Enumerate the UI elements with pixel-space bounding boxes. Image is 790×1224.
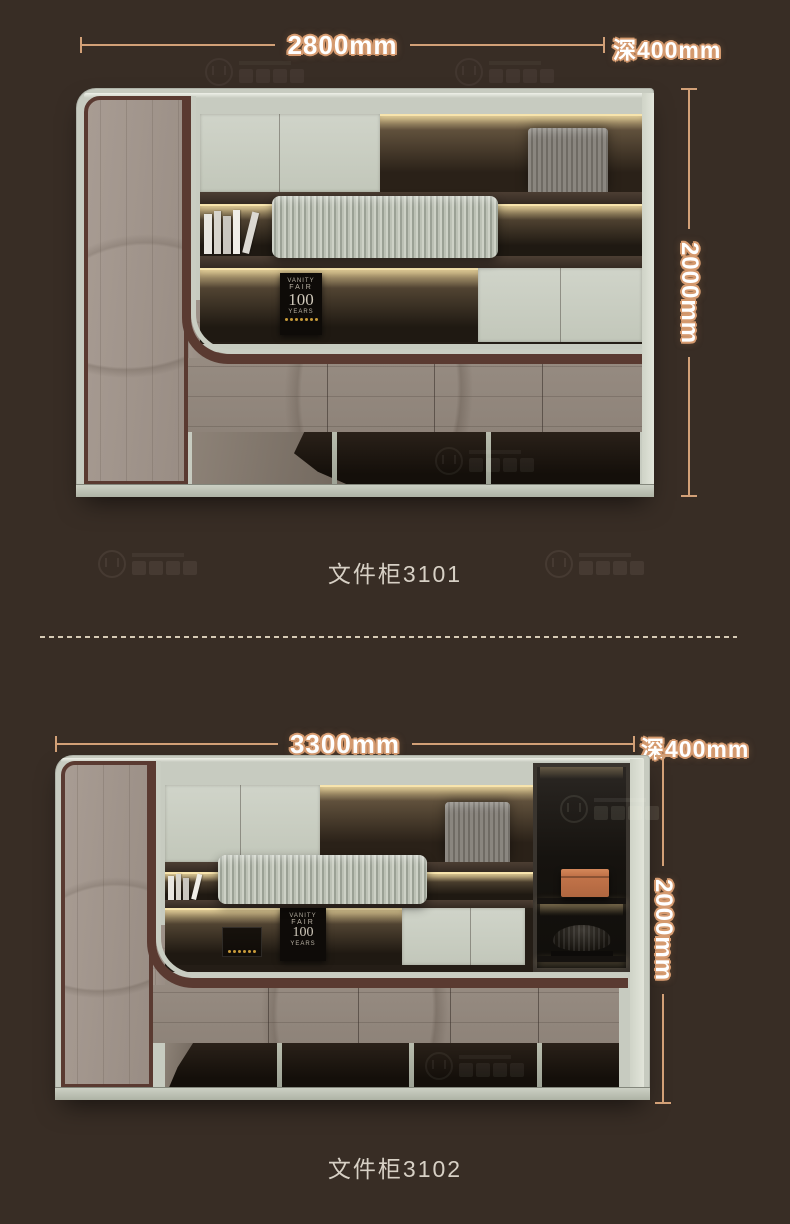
- cabinet-side-panel: [642, 93, 654, 485]
- books-decor: [204, 210, 266, 254]
- dashed-divider: [40, 636, 737, 638]
- upper-cabinet-doors: [200, 114, 380, 192]
- dimension-line: [410, 44, 603, 46]
- led-strip-light: [540, 767, 623, 779]
- brand-watermark-icon: [455, 58, 554, 86]
- book-spine: [168, 876, 174, 900]
- height-dimension-line-3102: 2000mm: [655, 755, 671, 1104]
- orange-box-decor: [561, 869, 609, 897]
- open-shelf-top: [380, 114, 642, 192]
- book-spine: [176, 874, 181, 900]
- dimension-tick: [655, 1102, 671, 1104]
- ribbed-decor-box: [528, 128, 608, 192]
- magazine-dots: [280, 318, 322, 321]
- cabinet-illustration-3102: VANITY FAIR 100 YEARS: [55, 755, 650, 1100]
- product-caption-3101: 文件柜3101: [0, 555, 790, 589]
- books-decor: [168, 873, 216, 900]
- watermark-logo-icon: [455, 58, 483, 86]
- magazine-title-line: 100: [280, 926, 326, 941]
- open-recess: [165, 1043, 619, 1087]
- book-stack-decor: [551, 951, 613, 956]
- brand-watermark-icon: [205, 58, 304, 86]
- cabinet-side-panel: [630, 759, 644, 1088]
- height-dimension-label: 2000mm: [675, 241, 703, 343]
- door-seam: [560, 268, 561, 342]
- product-caption-3102: 文件柜3102: [0, 1150, 790, 1184]
- lower-sage-doors: [478, 268, 642, 342]
- led-strip-light: [320, 785, 533, 801]
- dark-bowl-decor: [553, 925, 611, 951]
- tall-wood-door: [61, 761, 153, 1088]
- recess-divider: [409, 1043, 414, 1087]
- door-seam: [470, 908, 471, 965]
- recess-divider: [332, 432, 337, 485]
- recess-divider: [537, 1043, 542, 1087]
- led-strip-light: [540, 904, 623, 916]
- wood-sweep-wedge: [165, 1043, 193, 1087]
- book-spine: [191, 874, 202, 900]
- fluted-sliding-door: [272, 196, 498, 258]
- door-seam: [240, 785, 241, 862]
- dimension-line: [412, 743, 633, 745]
- fluted-sliding-door: [218, 855, 427, 904]
- magazine-title-line: 100: [280, 291, 322, 309]
- depth-dimension-label: 深400mm: [613, 31, 721, 65]
- tall-wood-door: [84, 96, 188, 485]
- door-seam: [268, 978, 269, 1043]
- open-shelf-top: [320, 785, 533, 862]
- book-spine: [183, 878, 189, 900]
- cabinet-base: [76, 484, 654, 497]
- decor-dots: [228, 950, 256, 953]
- ribbed-decor-box: [445, 802, 510, 862]
- door-seam: [450, 978, 451, 1043]
- height-dimension-line-3101: 2000mm: [681, 88, 697, 497]
- magazine-cover: VANITY FAIR 100 YEARS: [280, 908, 326, 961]
- book-spine: [214, 211, 221, 254]
- door-seam: [327, 352, 328, 432]
- door-seam: [358, 978, 359, 1043]
- product-spec-image: 2800mm 深400mm: [0, 0, 790, 1224]
- dimension-line: [57, 743, 278, 745]
- book-spine: [233, 210, 240, 254]
- book-spine: [204, 214, 212, 254]
- dimension-line: [662, 994, 664, 1103]
- magazine-title-line: YEARS: [280, 309, 322, 315]
- book-spine: [242, 212, 259, 254]
- cabinet-illustration-3101: VANITY FAIR 100 YEARS: [76, 88, 654, 497]
- upper-cabinet-doors: [165, 785, 320, 862]
- dark-display-column: [533, 763, 630, 972]
- door-seam: [279, 114, 280, 192]
- door-seam: [434, 352, 435, 432]
- dimension-tick: [603, 37, 605, 53]
- recess-divider: [486, 432, 491, 485]
- width-dimension-line-3102: 3300mm: [55, 736, 635, 752]
- led-strip-light: [200, 268, 478, 288]
- magazine-cover: VANITY FAIR 100 YEARS: [280, 273, 322, 335]
- cabinet-base: [55, 1087, 650, 1100]
- recess-divider: [277, 1043, 282, 1087]
- open-shelf-lower: [200, 268, 478, 342]
- dimension-line: [688, 90, 690, 229]
- dimension-tick: [681, 495, 697, 497]
- dimension-tick: [633, 736, 635, 752]
- open-recess: [192, 432, 640, 485]
- book-spine: [223, 216, 231, 254]
- framed-dots-decor: [222, 927, 262, 957]
- lower-sage-doors: [402, 908, 525, 965]
- dimension-line: [82, 44, 275, 46]
- door-seam: [542, 352, 543, 432]
- dimension-line: [662, 757, 664, 866]
- height-dimension-label: 2000mm: [649, 878, 677, 980]
- door-seam: [538, 978, 539, 1043]
- magazine-title-line: YEARS: [280, 941, 326, 947]
- watermark-logo-icon: [205, 58, 233, 86]
- width-dimension-label: 2800mm: [287, 30, 397, 61]
- dimension-line: [688, 357, 690, 496]
- column-shelf: [537, 956, 626, 962]
- width-dimension-line-3101: 2800mm: [80, 37, 605, 53]
